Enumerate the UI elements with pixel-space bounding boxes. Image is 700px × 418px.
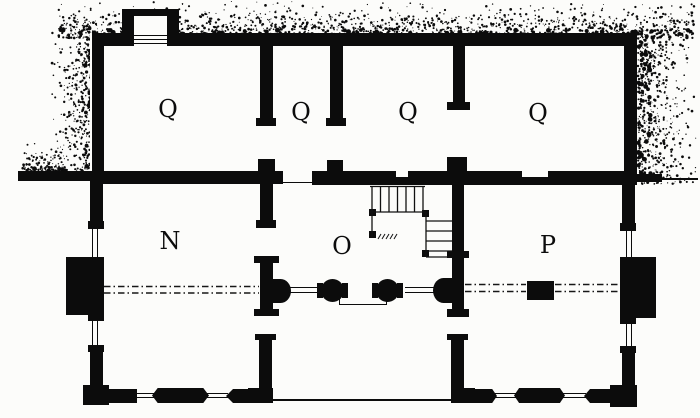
room-label-q3: Q: [398, 100, 418, 124]
room-label-n: N: [160, 229, 181, 253]
room-label-p: P: [540, 233, 556, 257]
room-label-q4: Q: [528, 101, 548, 125]
floor-plan-canvas: Q Q Q Q N O P: [0, 0, 700, 418]
room-label-q1: Q: [158, 97, 178, 121]
room-label-o: O: [332, 234, 352, 258]
labels-layer: Q Q Q Q N O P: [0, 0, 700, 418]
room-label-q2: Q: [291, 100, 311, 124]
